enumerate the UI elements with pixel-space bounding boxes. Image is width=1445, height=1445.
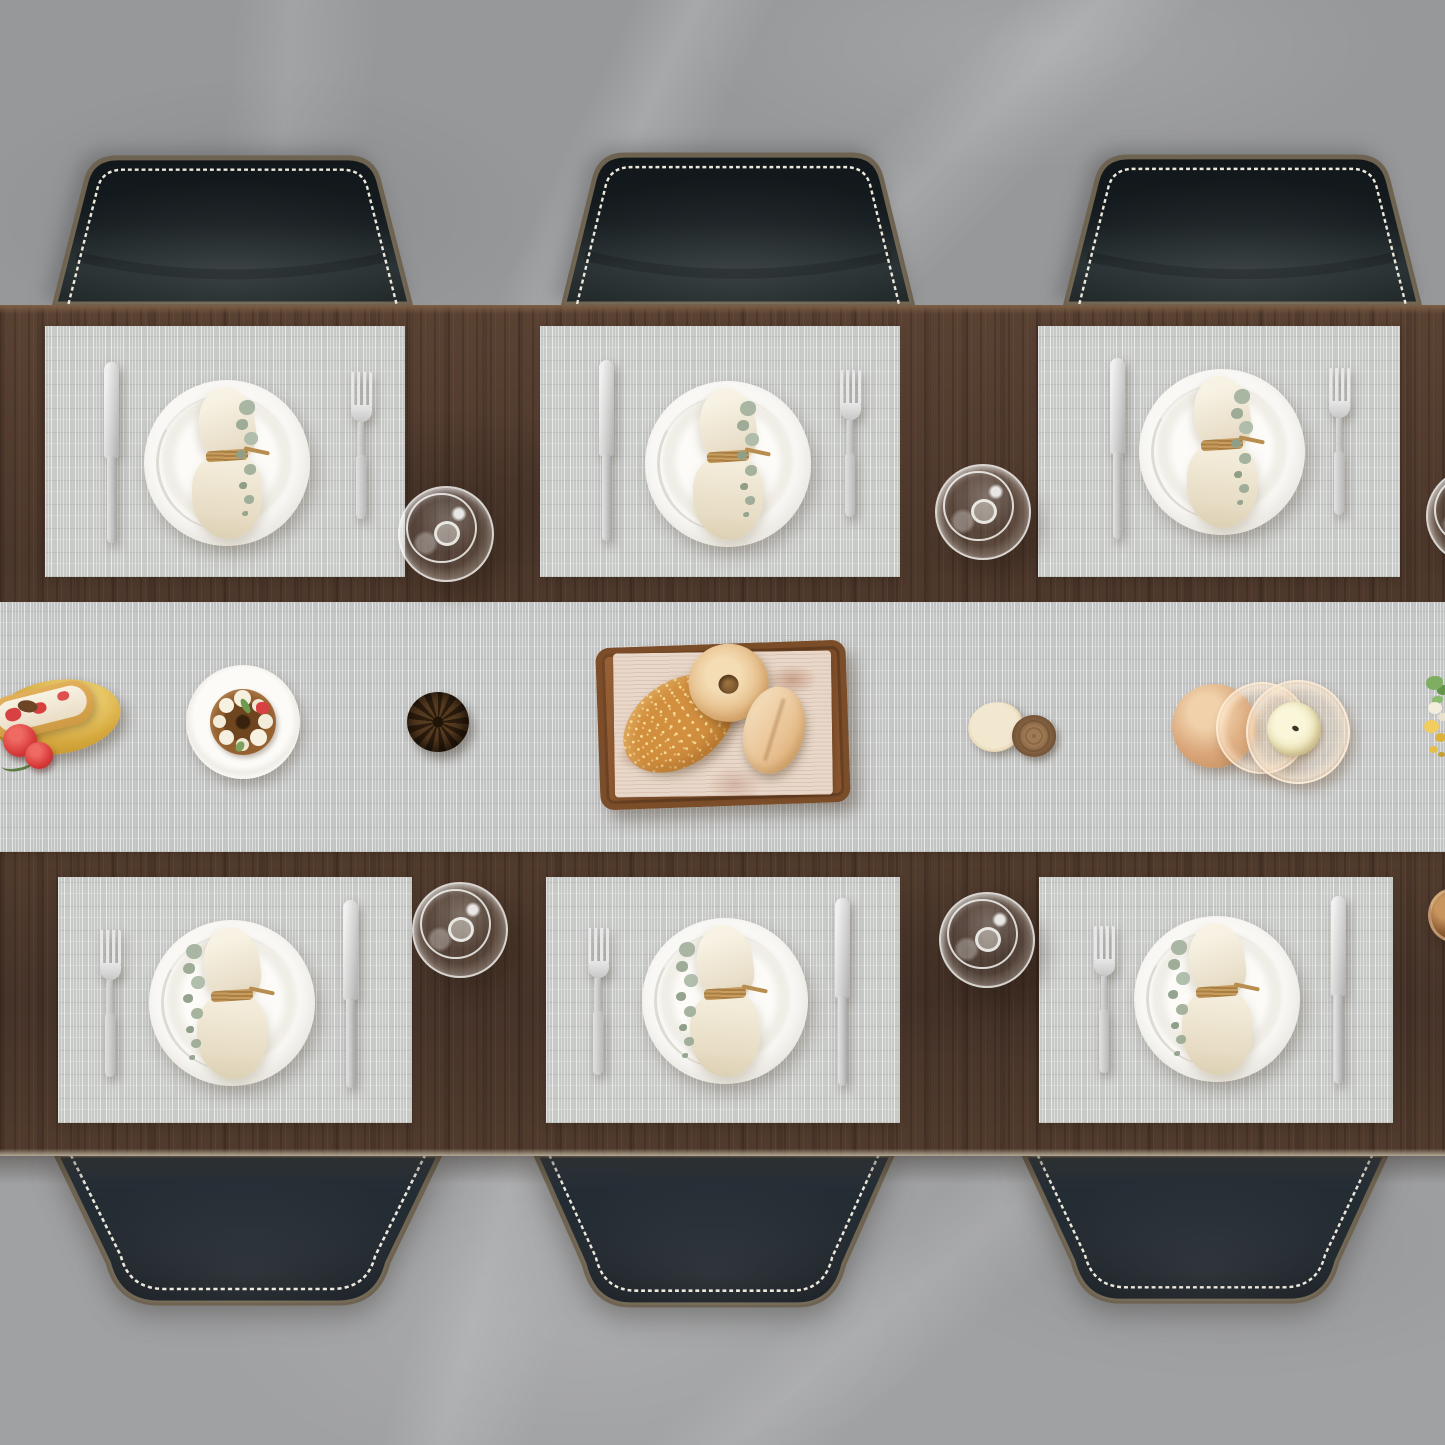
- knife-blade: [835, 898, 850, 998]
- fork-tines: [351, 372, 372, 406]
- plate-setting-6: [1134, 916, 1300, 1082]
- flower-leaves: [1426, 676, 1443, 690]
- fork-tines: [588, 928, 609, 962]
- yellow-flowers: [1424, 720, 1439, 733]
- eucalyptus-sprig: [740, 401, 756, 416]
- fork-tines: [100, 930, 121, 964]
- fork-neck: [1101, 976, 1107, 1009]
- napkin-skirt: [1182, 991, 1252, 1075]
- fork-neck: [595, 978, 601, 1011]
- wine-glass: [935, 464, 1031, 560]
- plate-setting-2: [645, 381, 811, 547]
- eucalyptus-sprig: [679, 942, 695, 957]
- napkin: [197, 927, 267, 1079]
- chair-top-1: [47, 146, 418, 304]
- eucalyptus-sprig: [1234, 389, 1250, 404]
- fork: [98, 930, 122, 1085]
- knife: [103, 362, 119, 547]
- fork-shoulder: [100, 963, 121, 980]
- knife-blade: [104, 362, 119, 458]
- knife: [598, 360, 614, 545]
- napkin-skirt: [693, 456, 763, 540]
- fork-handle: [593, 1011, 603, 1075]
- plate-setting-5: [642, 918, 808, 1084]
- knife-blade: [599, 360, 614, 456]
- knife: [834, 898, 850, 1090]
- eclair-board-group: [0, 678, 125, 778]
- fork-shoulder: [840, 403, 861, 420]
- fork-tines: [840, 370, 861, 404]
- white-flowers: [1428, 702, 1442, 714]
- fork-neck: [1336, 418, 1342, 451]
- fork: [349, 372, 373, 527]
- strawberry-garnish: [256, 702, 269, 714]
- napkin-skirt: [690, 993, 760, 1077]
- bread-tray-group: [595, 640, 851, 811]
- wine-glass: [398, 486, 494, 582]
- fork-handle: [1334, 451, 1344, 515]
- fork-tines: [1094, 926, 1115, 960]
- fork-neck: [358, 422, 364, 455]
- fork-handle: [1099, 1009, 1109, 1073]
- chair-sheen: [564, 155, 913, 304]
- pinecone: [407, 692, 469, 752]
- wine-glass: [939, 892, 1035, 988]
- dessert-plate-group: [186, 665, 300, 779]
- knife: [1109, 358, 1125, 543]
- knife-handle: [602, 454, 611, 541]
- fork-neck: [107, 980, 113, 1013]
- plate-setting-1: [144, 380, 310, 546]
- chair-sheen: [55, 158, 410, 304]
- knife-handle: [1334, 994, 1343, 1084]
- eucalyptus-sprig: [1171, 940, 1187, 955]
- plate-setting-3: [1139, 369, 1305, 535]
- eucalyptus-sprig: [186, 944, 202, 959]
- knife: [1330, 896, 1346, 1088]
- fork: [1092, 926, 1116, 1081]
- fork-shoulder: [351, 405, 372, 422]
- candle-wick: [1291, 725, 1299, 732]
- wine-glass: [412, 882, 508, 978]
- napkin: [690, 925, 760, 1077]
- fork-tines: [1329, 368, 1350, 402]
- fork: [586, 928, 610, 1083]
- fork-shoulder: [1329, 401, 1350, 418]
- pillar-candle: [1267, 702, 1321, 756]
- table-cast-shadow: [0, 1156, 1445, 1184]
- fork-neck: [847, 420, 853, 453]
- flowers-group: [1420, 676, 1445, 780]
- napkin: [1182, 923, 1252, 1075]
- napkin-skirt: [192, 455, 262, 539]
- chair-top-2: [556, 143, 920, 304]
- birch-slice: [1012, 715, 1056, 757]
- napkin-skirt: [1187, 444, 1257, 528]
- knife: [342, 900, 358, 1092]
- fork-shoulder: [588, 961, 609, 978]
- napkin-skirt: [197, 995, 267, 1079]
- strawberry: [25, 742, 53, 769]
- knife-blade: [1331, 896, 1346, 996]
- fork: [838, 370, 862, 525]
- plate-setting-4: [149, 920, 315, 1086]
- knife-blade: [343, 900, 358, 1000]
- birch-slices-group: [968, 695, 1060, 767]
- knife-handle: [107, 456, 116, 543]
- knife-blade: [1110, 358, 1125, 454]
- fork-shoulder: [1094, 959, 1115, 976]
- knife-handle: [838, 996, 847, 1086]
- candle-group: [1172, 678, 1354, 780]
- chair-top-3: [1058, 145, 1427, 304]
- knife-handle: [1113, 452, 1122, 539]
- fork: [1327, 368, 1351, 523]
- fork-handle: [356, 455, 366, 519]
- fork-handle: [105, 1013, 115, 1077]
- chair-sheen: [1066, 157, 1419, 304]
- dining-table-photo: [0, 0, 1445, 1445]
- fork-handle: [845, 453, 855, 517]
- knife-handle: [346, 998, 355, 1088]
- eucalyptus-sprig: [239, 400, 255, 415]
